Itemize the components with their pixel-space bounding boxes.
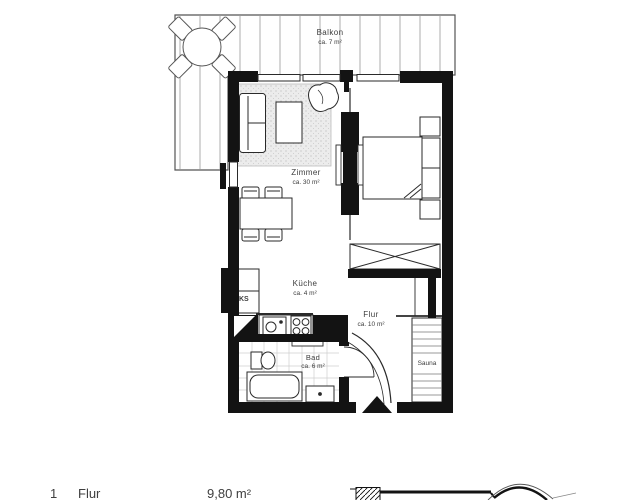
flur-area: ca. 10 m² (357, 322, 384, 329)
legend-room: Flur (78, 486, 100, 500)
bathroom-sink (306, 386, 334, 402)
stove (291, 316, 311, 337)
window-top (357, 75, 399, 82)
legend-index: 1 (50, 486, 57, 500)
zimmer-label: Zimmer (291, 169, 321, 177)
fridge-label: KS (239, 296, 249, 303)
balkon-label: Balkon (317, 29, 344, 37)
balkon-area: ca. 7 m² (318, 40, 341, 47)
bad-label: Bad (306, 354, 320, 362)
zimmer-area: ca. 30 m² (292, 180, 319, 187)
sofa (240, 94, 266, 153)
kueche-area: ca. 4 m² (293, 291, 316, 298)
kueche-label: Küche (293, 280, 318, 288)
sauna-label: Sauna (418, 361, 437, 368)
flur-label: Flur (363, 311, 378, 319)
floorplan-canvas: Balkon ca. 7 m² Zimmer ca. 30 m² Küche c… (0, 0, 636, 500)
bathroom-door (344, 347, 374, 377)
balcony-door-right (303, 75, 340, 82)
kitchen-sink (263, 317, 286, 335)
dining-set (240, 187, 292, 241)
bed (363, 117, 440, 219)
shaft-symbol (233, 315, 258, 340)
window-left (230, 162, 238, 187)
bathtub (247, 372, 302, 401)
detail-fragment (350, 484, 576, 500)
entrance-arrow (362, 396, 392, 413)
toilet (251, 352, 275, 369)
legend-area: 9,80 m² (207, 486, 251, 500)
balcony-door-left (258, 75, 300, 82)
plant (309, 83, 339, 112)
bad-area: ca. 6 m² (301, 364, 324, 371)
floorplan-drawing (0, 0, 636, 500)
wardrobe (350, 244, 440, 269)
entrance-door (346, 333, 391, 404)
coffee-table (276, 102, 302, 143)
partition-sliding-door (336, 88, 363, 240)
